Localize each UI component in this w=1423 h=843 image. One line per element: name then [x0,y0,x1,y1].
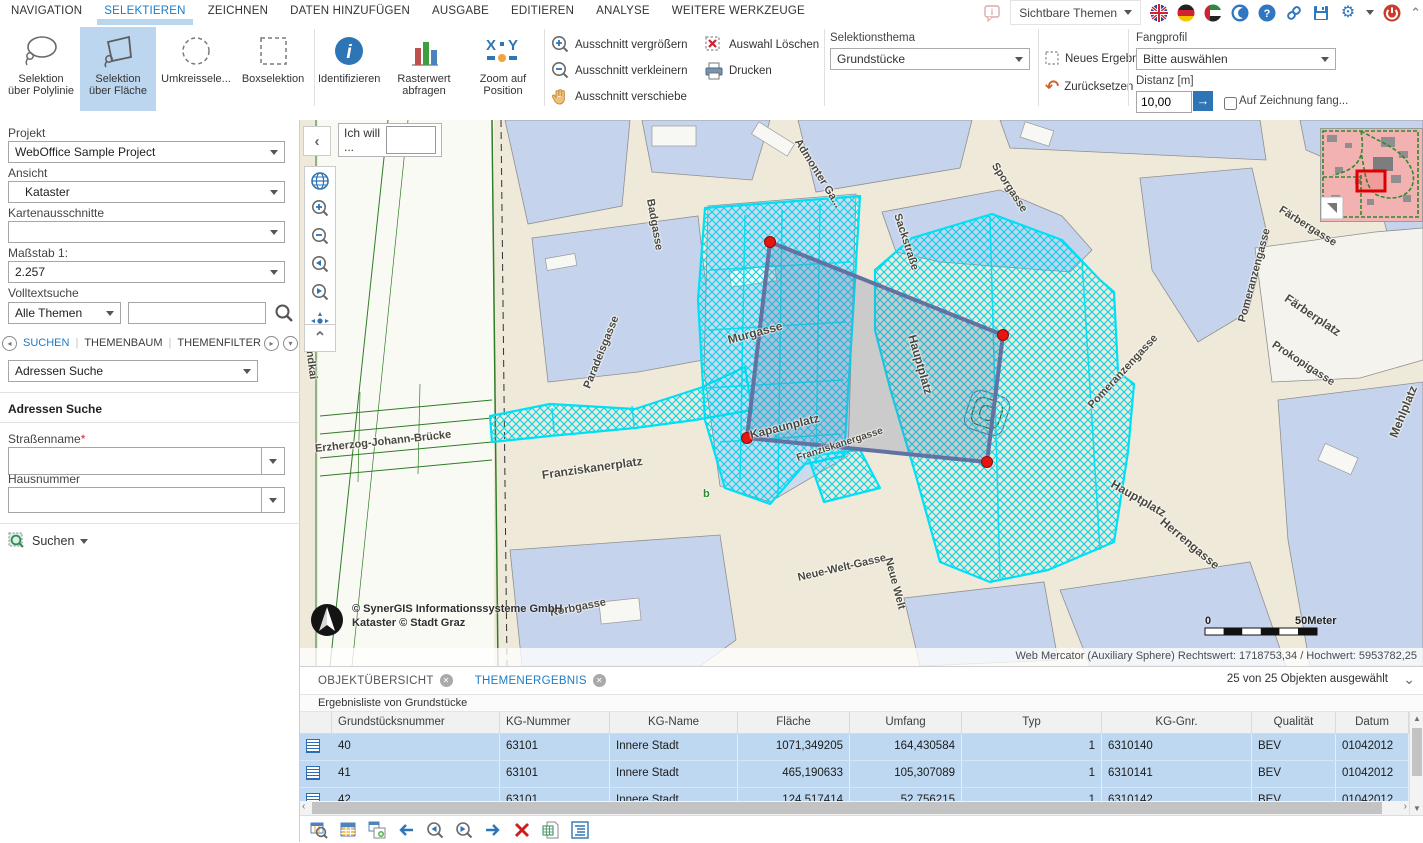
chevron-down-icon [270,270,278,275]
menubar: NAVIGATIONSELEKTIERENZEICHNENDATEN HINZU… [0,0,1423,25]
tab-label: THEMENERGEBNIS [475,675,587,687]
results-tab-themenergebnis[interactable]: THEMENERGEBNIS✕ [475,674,606,687]
scroll-right-icon[interactable]: › [1404,801,1407,812]
help-icon[interactable]: ? [1258,4,1276,22]
distance-label: Distanz [m] [1136,75,1194,87]
button-label: über Fläche [80,85,156,97]
printer-icon [704,61,724,81]
info-bubble-icon[interactable]: i [983,4,1001,22]
menu-tab-analyse[interactable]: ANALYSE [585,0,661,17]
close-tab-icon[interactable]: ✕ [440,674,453,687]
project-value: WebOffice Sample Project [15,145,155,159]
chevron-down-icon [270,230,278,235]
flag-germany-icon[interactable] [1177,4,1195,22]
chevron-down-icon [270,150,278,155]
button-label: Drucken [729,65,772,77]
result-list-title: Ergebnisliste von Grundstücke [300,694,1423,712]
results-toolbar [300,815,1423,843]
excel-export-icon[interactable] [542,821,560,839]
sidebar-tab-themenbaum[interactable]: THEMENBAUM [78,337,168,349]
table-cell: 1071,349205 [738,734,850,760]
snap-profile-value: Bitte auswählen [1143,52,1228,66]
raster-query-button[interactable]: Rasterwert abfragen [388,27,460,111]
svg-text:i: i [991,7,994,17]
map-toolbar [304,166,336,336]
collapse-panel-icon[interactable]: ⌄ [1403,671,1415,688]
column-header-kg-nummer[interactable]: KG-Nummer [500,712,610,733]
view-label: Ansicht [8,166,47,180]
logout-power-icon[interactable] [1383,4,1401,22]
column-header-qualit-t[interactable]: Qualität [1252,712,1336,733]
compass-north-icon [311,604,343,636]
button-label: Selektion [4,73,78,85]
clear-selection-button[interactable]: Auswahl Löschen [704,35,819,55]
ich-will-widget[interactable]: Ich will ... [338,123,442,157]
settings-gear-icon[interactable]: ⚙ [1339,4,1357,22]
zoom-previous-icon[interactable] [310,255,330,275]
button-label: Zoom auf [466,73,540,85]
map-viewport[interactable]: Admonter Ga...SporgasseSackstraßeFärberg… [300,120,1423,666]
search-type-value: Adressen Suche [15,364,103,378]
map-canvas[interactable] [300,120,1423,666]
snap-to-drawing-checkbox[interactable] [1224,97,1237,110]
sidebar-tab-themenfilter[interactable]: THEMENFILTER [171,337,264,349]
table-row[interactable]: 4163101Innere Stadt465,190633105,3070891… [300,761,1409,788]
chevron-down-icon[interactable] [261,488,284,512]
fulltext-search-label: Volltextsuche [8,286,79,300]
table-cell: 6310141 [1102,761,1252,787]
table-row[interactable]: 4263101Innere Stadt124,51741452,75621516… [300,788,1409,801]
table-cell: 164,430584 [850,734,962,760]
sidebar: Projekt WebOffice Sample Project Ansicht… [0,120,300,842]
menu-tab-navigation[interactable]: NAVIGATION [0,0,93,17]
required-asterisk: * [81,432,86,446]
globe-full-extent-icon[interactable] [310,171,330,191]
vertical-scrollbar[interactable]: ▲ ▼ [1409,712,1423,815]
menu-tab-selektieren[interactable]: SELEKTIEREN [93,0,196,17]
table-cell: 63101 [500,761,610,787]
button-label: Ausschnitt verschiebe [575,91,687,103]
print-button[interactable]: Drucken [704,61,772,81]
button-label: Rasterwert [388,73,460,85]
next-result-icon[interactable] [455,821,473,839]
results-tab-objektübersicht[interactable]: OBJEKTÜBERSICHT✕ [318,674,453,687]
button-label: Neues Ergebnis [1065,53,1147,65]
scale-label: Maßstab 1: [8,246,68,260]
menu-tab-editieren[interactable]: EDITIEREN [500,0,585,17]
overview-map[interactable] [1320,128,1423,222]
house-number-label: Hausnummer [8,472,80,486]
button-label: abfragen [388,85,460,97]
last-result-arrow-icon[interactable] [484,821,502,839]
project-label: Projekt [8,126,45,140]
tabs-more-icon[interactable]: ▾ [283,336,298,351]
row-detail-icon[interactable] [306,793,320,801]
street-name-combo[interactable] [8,447,285,475]
save-icon[interactable] [1312,4,1330,22]
menu-tab-daten-hinzuf-gen[interactable]: DATEN HINZUFÜGEN [279,0,421,17]
row-detail-icon[interactable] [306,766,320,780]
scrollbar-thumb[interactable] [312,802,1382,814]
scroll-down-icon[interactable]: ▼ [1413,804,1421,813]
plaza-area [1255,228,1423,382]
lasso-area-icon [80,31,156,73]
tabs-scroll-left-icon[interactable]: ◂ [2,336,17,351]
table-cell: 01042012 [1336,761,1409,787]
snap-profile-select[interactable]: Bitte auswählen [1136,48,1336,70]
overview-collapse-icon[interactable] [1321,197,1343,219]
selection-count: 25 von 25 Objekten ausgewählt [1227,673,1388,685]
flag-uk-icon[interactable] [1150,4,1168,22]
tabs-scroll-right-icon[interactable]: ▸ [264,336,279,351]
table-cell: 1 [962,761,1102,787]
table-cell: 41 [332,761,500,787]
scale-value: 2.257 [15,265,45,279]
first-result-arrow-icon[interactable] [397,821,415,839]
table-cell: 105,307089 [850,761,962,787]
view-select[interactable]: Kataster [8,181,285,203]
button-label: Ausschnitt vergrößern [575,39,688,51]
zoom-next-icon[interactable] [310,283,330,303]
table-header: GrundstücksnummerKG-NummerKG-NameFlächeU… [300,712,1409,734]
fulltext-scope-value: Alle Themen [15,306,82,320]
select-box-button[interactable]: Boxselektion [236,27,310,111]
collapse-sidebar-icon[interactable]: ‹ [303,126,331,156]
table-cell: 40 [332,734,500,760]
apply-distance-button[interactable]: → [1193,91,1213,111]
view-value: Kataster [15,185,70,199]
map-extents-select[interactable] [8,221,285,243]
collapse-ribbon-icon[interactable]: ⌃ [1410,5,1421,21]
menubar-right: i Sichtbare Themen ? ⚙ ⌃ [983,0,1421,25]
zoom-out-extent-button[interactable]: Ausschnitt verkleinern [550,61,688,81]
flag-uae-icon[interactable] [1204,4,1222,22]
map-extents-label: Kartenausschnitte [8,206,104,220]
search-button[interactable]: Suchen [8,532,88,550]
table-cell: 42 [332,788,500,801]
clear-selection-icon [704,35,724,55]
chevron-down-icon [1015,57,1023,62]
table-cell: 6310140 [1102,734,1252,760]
menu-tab-weitere-werkzeuge[interactable]: WEITERE WERKZEUGE [661,0,816,17]
distance-input[interactable] [1136,91,1192,113]
selection-theme-label: Selektionsthema [830,32,915,44]
zoom-in-extent-button[interactable]: Ausschnitt vergrößern [550,35,688,55]
project-select[interactable]: WebOffice Sample Project [8,141,285,163]
ribbon: Selektion über Polylinie Selektion über … [0,25,1423,121]
svg-text:Y: Y [508,37,518,54]
visible-themes-label: Sichtbare Themen [1019,6,1117,20]
table-row[interactable]: 4063101Innere Stadt1071,349205164,430584… [300,734,1409,761]
map-copyright: © SynerGIS Informationssysteme GmbH Kata… [352,602,562,630]
table-cell: BEV [1252,788,1336,801]
scale-bar [1205,628,1317,635]
chevron-down-icon [80,539,88,544]
scale-start-label: 0 [1205,615,1211,627]
chevron-down-icon [270,190,278,195]
svg-text:X: X [486,37,496,54]
house-number-combo[interactable] [8,487,285,513]
street-name-label: Straßenname* [8,432,85,446]
table-copy-icon[interactable] [368,821,386,839]
table-cell: Innere Stadt [610,761,738,787]
zoom-to-position-button[interactable]: XY Zoom auf Position [466,27,540,111]
menu-tab-zeichnen[interactable]: ZEICHNEN [197,0,279,17]
search-section-title: Adressen Suche [8,402,102,416]
search-icon[interactable] [274,303,294,323]
ich-will-input[interactable] [386,126,436,154]
table-cell: BEV [1252,761,1336,787]
table-cell: Innere Stadt [610,734,738,760]
sidebar-tab-suchen[interactable]: SUCHEN [17,337,75,349]
button-label: Selektion [80,73,156,85]
chevron-down-icon [1124,10,1132,15]
snap-profile-label: Fangprofil [1136,32,1187,44]
column-header-kg-name[interactable]: KG-Name [610,712,738,733]
result-structure-icon[interactable] [571,821,589,839]
reset-button[interactable]: ↶ Zurücksetzen [1045,79,1133,94]
button-label: Umkreissele... [158,73,234,85]
icon-column-header [300,712,332,733]
pan-hand-icon [550,87,570,107]
identify-button[interactable]: i Identifizieren [318,27,380,111]
table-search-icon[interactable] [310,821,328,839]
link-icon[interactable] [1285,4,1303,22]
magnifier-plus-icon [550,35,570,55]
button-label: über Polylinie [4,85,78,97]
button-label: Ausschnitt verkleinern [575,65,688,77]
crescent-icon[interactable] [1231,4,1249,22]
table-cell: 1 [962,734,1102,760]
scale-select[interactable]: 2.257 [8,261,285,283]
xy-position-icon: XY [466,31,540,73]
select-polyline-button[interactable]: Selektion über Polylinie [4,27,78,111]
row-detail-icon[interactable] [306,739,320,753]
column-header-grundst-cksnummer[interactable]: Grundstücksnummer [332,712,500,733]
column-header-datum[interactable]: Datum [1336,712,1409,733]
table-cell: Innere Stadt [610,788,738,801]
info-circle-icon: i [318,31,380,73]
button-label: Boxselektion [236,73,310,85]
fulltext-scope-select[interactable]: Alle Themen [8,302,121,324]
column-header-typ[interactable]: Typ [962,712,1102,733]
column-header-kg-gnr-[interactable]: KG-Gnr. [1102,712,1252,733]
chevron-down-icon [106,311,114,316]
scroll-up-icon[interactable]: ▲ [1413,714,1421,723]
fulltext-search-input[interactable] [128,302,266,324]
svg-text:i: i [346,42,352,63]
undo-arrow-icon: ↶ [1045,79,1059,94]
table-cell: 465,190633 [738,761,850,787]
column-header-umfang[interactable]: Umfang [850,712,962,733]
visible-themes-dropdown[interactable]: Sichtbare Themen [1010,0,1141,25]
zoom-out-icon[interactable] [310,227,330,247]
scrollbar-thumb[interactable] [1412,728,1422,776]
river-area [318,120,494,666]
select-area-button[interactable]: Selektion über Fläche [80,27,156,111]
magnifier-minus-icon [550,61,570,81]
tab-label: OBJEKTÜBERSICHT [318,675,434,687]
chevron-down-icon [243,369,251,374]
overview-extent-rect[interactable] [1357,171,1385,191]
button-label: Auswahl Löschen [729,39,819,51]
button-label: Identifizieren [318,73,380,85]
chevron-down-icon[interactable] [261,448,284,474]
street-label: b [703,488,710,500]
table-cell: 6310142 [1102,788,1252,801]
table-cell: 124,517414 [738,788,850,801]
scroll-left-icon[interactable]: ‹ [302,801,305,812]
settings-caret-icon[interactable] [1366,10,1374,15]
sidebar-tabs: ◂ SUCHEN|THEMENBAUM|THEMENFILTER ▸ ▾ [2,332,298,354]
search-type-select[interactable]: Adressen Suche [8,360,258,382]
svg-text:?: ? [1264,8,1271,20]
selection-theme-select[interactable]: Grundstücke [830,48,1030,70]
ich-will-label: Ich will ... [344,126,381,154]
column-header-fl-che[interactable]: Fläche [738,712,850,733]
search-button-label: Suchen [32,534,74,548]
table-body: 4063101Innere Stadt1071,349205164,430584… [300,734,1409,801]
search-selection-icon [8,532,26,550]
selection-theme-value: Grundstücke [837,52,905,66]
table-cell: 01042012 [1336,788,1409,801]
new-result-icon [1045,51,1060,66]
pan-extent-button[interactable]: Ausschnitt verschiebe [550,87,687,107]
results-panel: OBJEKTÜBERSICHT✕THEMENERGEBNIS✕ 25 von 2… [300,666,1423,842]
dashed-circle-icon [158,31,234,73]
select-circle-button[interactable]: Umkreissele... [158,27,234,111]
button-label: Zurücksetzen [1064,81,1133,93]
zoom-in-icon[interactable] [310,199,330,219]
table-cell: 63101 [500,734,610,760]
close-tab-icon[interactable]: ✕ [593,674,606,687]
bar-chart-icon [388,31,460,73]
table-cell: 52,756215 [850,788,962,801]
horizontal-scrollbar[interactable]: ‹ › [300,801,1409,815]
table-icon[interactable] [339,821,357,839]
menu-tab-ausgabe[interactable]: AUSGABE [421,0,500,17]
delete-result-icon[interactable] [513,821,531,839]
lasso-polyline-icon [4,31,78,73]
table-cell: 1 [962,788,1102,801]
scale-end-label: 50Meter [1295,615,1337,627]
button-label: Position [466,85,540,97]
snap-to-drawing-label: Auf Zeichnung fang... [1239,95,1348,107]
previous-result-icon[interactable] [426,821,444,839]
table-cell: 63101 [500,788,610,801]
collapse-toolbar-icon[interactable]: ⌃ [304,324,336,352]
dashed-box-icon [236,31,310,73]
chevron-down-icon [1321,57,1329,62]
table-cell: 01042012 [1336,734,1409,760]
table-cell: BEV [1252,734,1336,760]
coordinate-status: Web Mercator (Auxiliary Sphere) Rechtswe… [300,648,1423,666]
